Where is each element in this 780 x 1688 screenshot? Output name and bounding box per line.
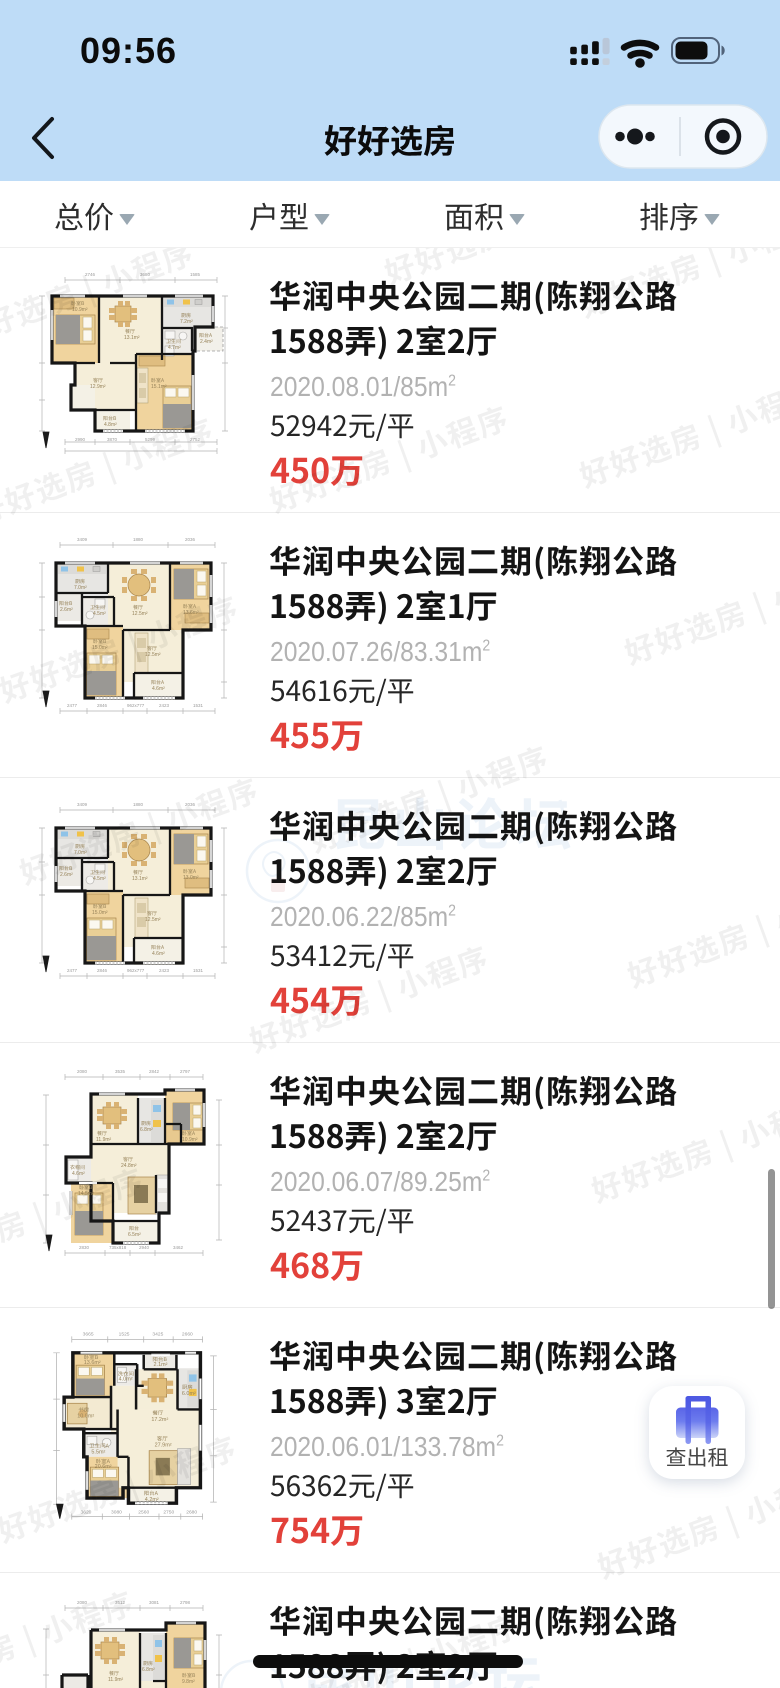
svg-text:2036: 2036 bbox=[185, 537, 196, 542]
svg-text:3409: 3409 bbox=[77, 802, 88, 807]
svg-text:12.5m²: 12.5m² bbox=[145, 917, 161, 923]
svg-text:2842: 2842 bbox=[149, 1069, 160, 1074]
svg-text:962x777: 962x777 bbox=[127, 703, 145, 708]
svg-text:3462: 3462 bbox=[173, 1245, 184, 1250]
svg-text:9.8m²: 9.8m² bbox=[182, 1679, 195, 1685]
svg-text:962x777: 962x777 bbox=[127, 968, 145, 973]
svg-text:11.9m²: 11.9m² bbox=[108, 1677, 124, 1683]
svg-text:2.4m²: 2.4m² bbox=[200, 339, 213, 345]
svg-text:2798: 2798 bbox=[180, 1600, 191, 1605]
svg-text:3425: 3425 bbox=[152, 1331, 163, 1337]
svg-text:2680: 2680 bbox=[186, 1510, 197, 1516]
svg-text:15.0m²: 15.0m² bbox=[92, 645, 108, 651]
svg-text:20.6m²: 20.6m² bbox=[95, 1464, 112, 1470]
svg-text:4.0m²: 4.0m² bbox=[119, 1377, 133, 1383]
svg-text:2080: 2080 bbox=[77, 1069, 88, 1074]
svg-text:15.1m²: 15.1m² bbox=[151, 384, 167, 390]
svg-text:1585: 1585 bbox=[190, 272, 201, 277]
svg-text:6.0m²: 6.0m² bbox=[182, 1391, 196, 1397]
svg-text:13.6m²: 13.6m² bbox=[183, 610, 199, 616]
svg-text:3620: 3620 bbox=[81, 1510, 92, 1516]
svg-text:2.1m²: 2.1m² bbox=[154, 1362, 168, 1368]
svg-text:5299: 5299 bbox=[145, 437, 156, 442]
svg-text:1880: 1880 bbox=[133, 802, 144, 807]
svg-text:13.1m²: 13.1m² bbox=[132, 876, 148, 882]
svg-text:13.1m²: 13.1m² bbox=[124, 335, 140, 341]
svg-text:2.6m²: 2.6m² bbox=[60, 607, 73, 613]
svg-text:2846: 2846 bbox=[97, 968, 108, 973]
svg-text:2080: 2080 bbox=[77, 1600, 88, 1605]
svg-text:1531: 1531 bbox=[193, 968, 204, 973]
svg-text:6.5m²: 6.5m² bbox=[128, 1232, 141, 1238]
svg-text:735x818: 735x818 bbox=[109, 1245, 127, 1250]
svg-text:1880: 1880 bbox=[133, 537, 144, 542]
svg-text:2660: 2660 bbox=[182, 1331, 193, 1337]
svg-text:2750: 2750 bbox=[163, 1510, 174, 1516]
svg-text:2477: 2477 bbox=[67, 703, 78, 708]
svg-text:3081: 3081 bbox=[149, 1600, 160, 1605]
svg-text:4.5m²: 4.5m² bbox=[93, 611, 106, 617]
svg-text:3409: 3409 bbox=[77, 537, 88, 542]
svg-text:1531: 1531 bbox=[193, 703, 204, 708]
svg-text:2830: 2830 bbox=[79, 1245, 90, 1250]
svg-text:3535: 3535 bbox=[115, 1069, 126, 1074]
svg-text:7.2m²: 7.2m² bbox=[180, 319, 193, 325]
svg-text:4.8m²: 4.8m² bbox=[104, 422, 117, 428]
svg-text:4.6m²: 4.6m² bbox=[152, 951, 165, 957]
svg-text:7.0m²: 7.0m² bbox=[74, 850, 87, 856]
svg-text:5.5m²: 5.5m² bbox=[91, 1450, 105, 1456]
svg-text:7.0m²: 7.0m² bbox=[74, 585, 87, 591]
svg-text:2752: 2752 bbox=[190, 437, 201, 442]
svg-text:2746: 2746 bbox=[85, 272, 96, 277]
svg-text:2423: 2423 bbox=[159, 968, 170, 973]
svg-text:13.6m²: 13.6m² bbox=[84, 1360, 101, 1366]
svg-text:24.8m²: 24.8m² bbox=[121, 1163, 137, 1169]
svg-text:4.5m²: 4.5m² bbox=[93, 876, 106, 882]
svg-text:2036: 2036 bbox=[185, 802, 196, 807]
svg-text:27.9m²: 27.9m² bbox=[155, 1443, 172, 1449]
svg-text:4.2m²: 4.2m² bbox=[145, 1497, 159, 1503]
svg-text:15.0m²: 15.0m² bbox=[92, 910, 108, 916]
svg-text:2990: 2990 bbox=[75, 437, 86, 442]
svg-text:10.9m²: 10.9m² bbox=[72, 307, 88, 313]
svg-text:12.5m²: 12.5m² bbox=[132, 611, 148, 617]
svg-text:2477: 2477 bbox=[67, 968, 78, 973]
svg-text:3870: 3870 bbox=[107, 437, 118, 442]
svg-text:2797: 2797 bbox=[180, 1069, 191, 1074]
svg-text:2423: 2423 bbox=[159, 703, 170, 708]
svg-text:10.9m²: 10.9m² bbox=[182, 1137, 198, 1143]
svg-text:11.9m²: 11.9m² bbox=[96, 1137, 112, 1143]
svg-text:2846: 2846 bbox=[97, 703, 108, 708]
svg-text:4.6m²: 4.6m² bbox=[152, 686, 165, 692]
svg-text:3680: 3680 bbox=[140, 272, 151, 277]
svg-text:2.6m²: 2.6m² bbox=[60, 872, 73, 878]
svg-text:6.8m²: 6.8m² bbox=[140, 1127, 153, 1133]
svg-text:4.7m²: 4.7m² bbox=[168, 345, 181, 351]
svg-text:3080: 3080 bbox=[111, 1510, 122, 1516]
svg-text:2940: 2940 bbox=[139, 1245, 150, 1250]
svg-text:13.0m²: 13.0m² bbox=[183, 875, 199, 881]
svg-text:12.9m²: 12.9m² bbox=[90, 384, 106, 390]
svg-text:1525: 1525 bbox=[119, 1331, 130, 1337]
svg-text:3665: 3665 bbox=[83, 1331, 94, 1337]
svg-text:14.5m²: 14.5m² bbox=[78, 1191, 94, 1197]
svg-text:6.8m²: 6.8m² bbox=[142, 1667, 155, 1673]
svg-text:2560: 2560 bbox=[138, 1510, 149, 1516]
svg-text:10.0m²: 10.0m² bbox=[77, 1414, 94, 1420]
svg-text:12.5m²: 12.5m² bbox=[145, 652, 161, 658]
svg-text:17.2m²: 17.2m² bbox=[151, 1417, 168, 1423]
svg-text:3512: 3512 bbox=[115, 1600, 126, 1605]
svg-text:4.6m²: 4.6m² bbox=[72, 1171, 85, 1177]
